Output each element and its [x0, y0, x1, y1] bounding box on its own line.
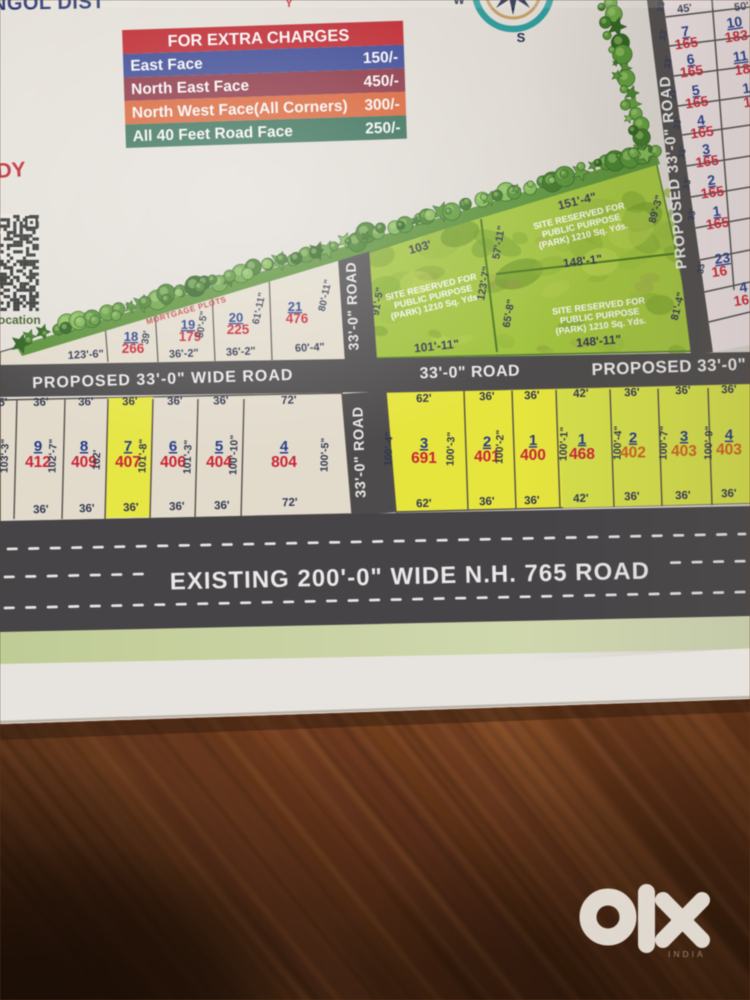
svg-text:INDIA: INDIA	[668, 949, 706, 959]
